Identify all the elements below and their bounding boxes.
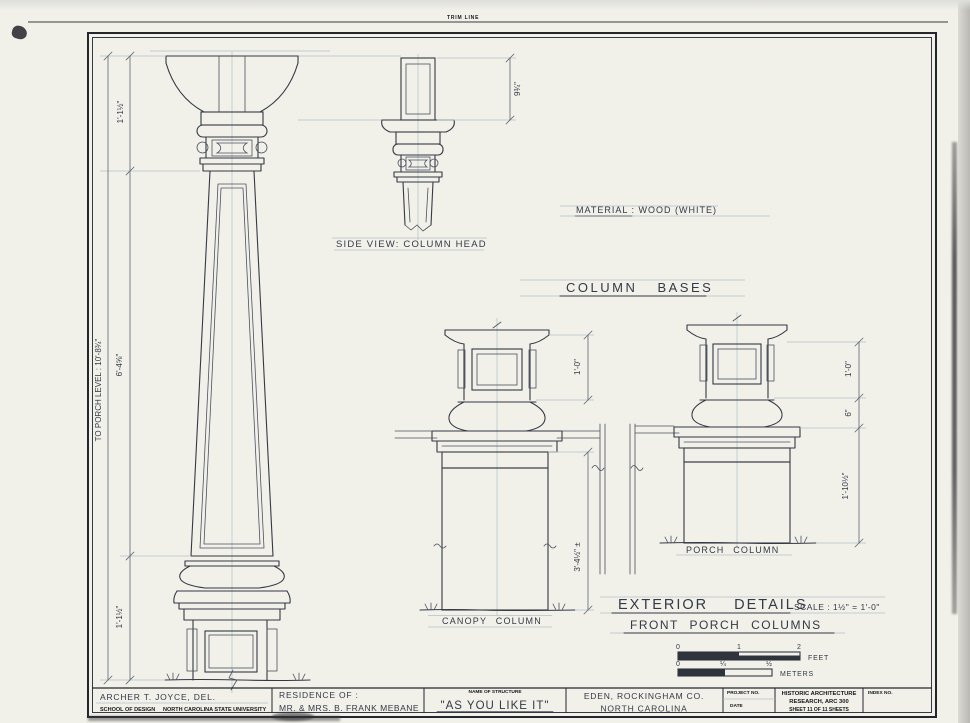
porch-column-base: PORCH COLUMN 1'-0" 6" 1'-10½" <box>660 312 866 555</box>
material-note: MATERIAL : WOOD (WHITE) <box>576 205 717 215</box>
meters-tick-1: ¼ <box>720 661 726 668</box>
exterior-details-heading-group: EXTERIOR DETAILS SCALE : 1½" = 1'-0" FRO… <box>600 597 885 633</box>
state-name: NORTH CAROLINA <box>600 704 687 714</box>
front-porch-columns-heading: FRONT PORCH COLUMNS <box>630 618 822 632</box>
sheet-border <box>88 33 936 717</box>
titleblock-cell-project: PROJECT NO. DATE <box>723 690 775 709</box>
paper-edge-top <box>0 0 970 10</box>
feet-tick-0: 0 <box>676 644 680 651</box>
dim-shaft-height: 6'-4⅝" <box>115 354 124 377</box>
porch-deck-lines <box>395 424 679 574</box>
titleblock-cell-structure: NAME OF STRUCTURE "AS YOU LIKE IT" <box>437 689 553 712</box>
side-view-label: SIDE VIEW: COLUMN HEAD <box>336 239 487 250</box>
column-front-view <box>165 56 310 690</box>
canopy-brick-pier <box>442 468 548 610</box>
index-no-label: INDEX NO. <box>868 690 893 696</box>
porch-column-label: PORCH COLUMN <box>686 545 779 555</box>
canopy-column-label: CANOPY COLUMN <box>442 616 542 626</box>
titleblock-cell-residence: RESIDENCE OF : MR. & MRS. B. FRANK MEBAN… <box>279 690 419 713</box>
meters-tick-2: ½ <box>766 660 772 668</box>
column-head-side-view: 9¾" SIDE VIEW: COLUMN HEAD <box>332 54 522 250</box>
paper-edge-right <box>958 0 970 723</box>
canopy-column-base: CANOPY COLUMN 1'-0" 3'-4½" ± <box>420 318 594 627</box>
school-label: SCHOOL OF DESIGN <box>100 707 155 713</box>
feet-tick-1: 1 <box>737 644 741 651</box>
date-label: DATE <box>730 703 744 709</box>
titleblock-cell-location: EDEN, ROCKINGHAM CO. NORTH CAROLINA <box>584 691 704 714</box>
feet-scale-bar: 0 1 2 FEET <box>676 644 829 662</box>
dim-porch-pier-height: 1'-10½" <box>841 472 850 499</box>
scan-blob-bottom <box>272 712 314 721</box>
feet-tick-2: 2 <box>797 644 801 651</box>
meters-unit-label: METERS <box>780 671 814 678</box>
titleblock-cell-index: INDEX NO. <box>868 690 893 696</box>
dim-head-side-depth: 9¾" <box>513 82 522 96</box>
dim-porch-base-height: 1'-0" <box>844 361 853 377</box>
dim-capital-height: 1'-1½" <box>116 101 125 124</box>
exterior-details-heading: EXTERIOR DETAILS <box>618 597 808 613</box>
trim-line-label: TRIM LINE <box>447 15 479 21</box>
column-bases-heading: COLUMN BASES <box>566 280 713 295</box>
drawing-svg: TRIM LINE <box>0 0 970 723</box>
university-label: NORTH CAROLINA STATE UNIVERSITY <box>163 707 267 713</box>
dim-to-porch-level: TO PORCH LEVEL : 10'-8¾" <box>94 339 103 442</box>
front-view-dimensions: TO PORCH LEVEL : 10'-8¾" 1'-1½" 6'-4⅝" 1… <box>94 52 200 684</box>
structure-name: "AS YOU LIKE IT" <box>441 700 550 712</box>
org-line1: HISTORIC ARCHITECTURE <box>782 691 857 697</box>
city-county: EDEN, ROCKINGHAM CO. <box>584 691 704 701</box>
scale-bars: 0 1 2 FEET 0 ¼ ½ METERS <box>676 644 829 678</box>
material-note-group: MATERIAL : WOOD (WHITE) <box>560 205 770 216</box>
meters-tick-0: 0 <box>676 661 680 668</box>
dim-canopy-base-height: 1'-0" <box>573 359 582 375</box>
column-bases-heading-group: COLUMN BASES <box>520 280 745 296</box>
project-no-label: PROJECT NO. <box>727 690 760 696</box>
dim-base-height: 1'-1½" <box>115 606 124 629</box>
construction-lines <box>150 51 418 693</box>
meters-scale-bar: 0 ¼ ½ METERS <box>676 660 814 678</box>
title-block: ARCHER T. JOYCE, DEL. SCHOOL OF DESIGN N… <box>92 688 932 714</box>
structure-label: NAME OF STRUCTURE <box>468 689 522 695</box>
scan-streak-right <box>952 142 957 614</box>
titleblock-cell-organization: HISTORIC ARCHITECTURE RESEARCH, ARC 300 … <box>782 691 857 713</box>
org-line2: RESEARCH, ARC 300 <box>789 699 848 705</box>
scanned-drawing-sheet: TRIM LINE <box>0 0 970 723</box>
titleblock-cell-delineator: ARCHER T. JOYCE, DEL. SCHOOL OF DESIGN N… <box>96 692 268 713</box>
dim-canopy-pier-height: 3'-4½" ± <box>573 542 582 572</box>
delineator-name: ARCHER T. JOYCE, DEL. <box>100 692 216 702</box>
trim-line: TRIM LINE <box>28 15 948 22</box>
feet-unit-label: FEET <box>808 655 829 662</box>
scale-note: SCALE : 1½" = 1'-0" <box>794 602 880 612</box>
residence-label: RESIDENCE OF : <box>279 690 359 700</box>
dim-porch-base-lower: 6" <box>844 409 853 416</box>
